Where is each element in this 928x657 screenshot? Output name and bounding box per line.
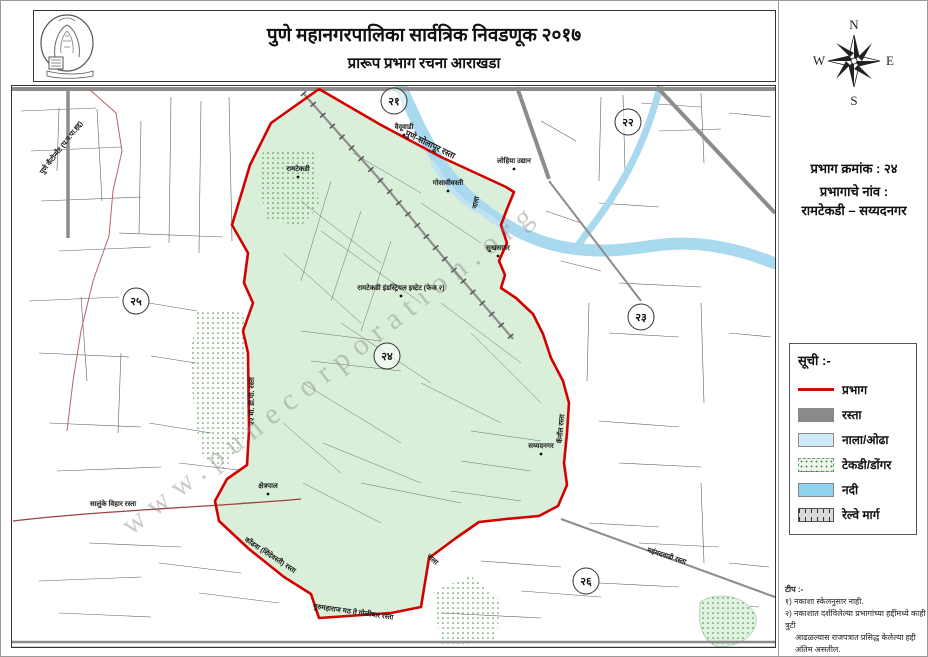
legend-label: टेकडी/डोंगर xyxy=(842,456,891,473)
compass-w: W xyxy=(813,53,826,68)
notes: टीप :- १) नकाशा स्केलनुसार नाही. २) नकाश… xyxy=(785,584,927,656)
map-label: रामटेकडी इंडस्ट्रियल इस्टेट (फेज २) xyxy=(356,283,444,292)
map-label: गोसावीवस्ती xyxy=(432,178,465,187)
legend-label: रेल्वे मार्ग xyxy=(842,506,879,523)
legend-label: नाला/ओढा xyxy=(842,431,889,448)
place-dot xyxy=(297,176,300,179)
ward-map-svg: www.punecorporation.org २१२२२३२४२५२६पुणे… xyxy=(12,86,775,647)
map-label: रामटेकडी xyxy=(285,164,311,173)
svg-text:२६: २६ xyxy=(580,576,592,588)
legend-item: टेकडी/डोंगर xyxy=(798,452,908,477)
compass-n: N xyxy=(849,17,859,32)
place-dot xyxy=(540,453,543,456)
ward-number-marker: २२ xyxy=(615,109,641,135)
legend-swatch-railway xyxy=(798,508,834,522)
legend-swatch-red-line xyxy=(798,388,834,391)
ward-number-marker: २३ xyxy=(628,304,654,330)
map-label: २२ मी. डी.पी. रस्ता xyxy=(247,376,256,425)
svg-text:२१: २१ xyxy=(388,96,399,108)
legend-swatch-solid xyxy=(798,433,834,447)
svg-text:२२: २२ xyxy=(622,117,634,129)
ward-number-marker: २१ xyxy=(381,88,407,114)
legend-item: प्रभाग xyxy=(798,377,908,402)
legend-swatch-dotted xyxy=(798,458,834,472)
map-label: क्षेत्रपाल xyxy=(258,481,278,490)
svg-text:२३: २३ xyxy=(635,312,647,324)
place-dot xyxy=(400,295,403,298)
map-label: पुणे कॅंटोन्मेंट (प.न.पा.हद्द) xyxy=(37,119,85,177)
compass-rose-icon: N E S W xyxy=(812,11,896,111)
place-dot xyxy=(513,168,516,171)
map-label: लोहिया उद्यान xyxy=(496,156,532,165)
header: पुणे महानगरपालिका सार्वत्रिक निवडणूक २०१… xyxy=(33,10,776,82)
notes-line-3: आढळल्यास राजपत्रात प्रसिद्ध केलेल्या हद्… xyxy=(785,632,927,656)
svg-text:२५: २५ xyxy=(130,296,142,308)
place-dot xyxy=(267,493,270,496)
ward-map-sheet: पुणे महानगरपालिका सार्वत्रिक निवडणूक २०१… xyxy=(0,0,928,657)
ward-number: प्रभाग क्रमांक : २४ xyxy=(779,159,928,177)
page-title: पुणे महानगरपालिका सार्वत्रिक निवडणूक २०१… xyxy=(144,21,704,51)
legend: सूची :- प्रभागरस्तानाला/ओढाटेकडी/डोंगरनद… xyxy=(789,343,917,535)
legend-item: नदी xyxy=(798,477,908,502)
legend-item: रस्ता xyxy=(798,402,908,427)
place-dot xyxy=(403,134,406,137)
ward-name-label: प्रभागाचे नांव : xyxy=(779,182,928,200)
legend-title: सूची :- xyxy=(798,351,908,369)
compass-s: S xyxy=(850,93,857,108)
legend-swatch-solid xyxy=(798,483,834,497)
map-label: वैदूवाडी xyxy=(394,122,415,132)
legend-label: प्रभाग xyxy=(842,381,867,398)
legend-label: नदी xyxy=(842,481,858,498)
ward-number-marker: २६ xyxy=(573,568,599,594)
place-dot xyxy=(497,255,500,258)
notes-title: टीप :- xyxy=(785,584,927,596)
ward-name: रामटेकडी – सय्यदनगर xyxy=(779,201,928,219)
legend-item: रेल्वे मार्ग xyxy=(798,502,908,527)
ward-number-marker: २४ xyxy=(374,343,400,369)
map-label: सालुंके विहार रस्ता xyxy=(89,499,137,509)
map-label: महंमदवाडी रस्ता xyxy=(645,545,688,567)
cantonment-boundary xyxy=(67,89,122,431)
compass-e: E xyxy=(886,53,894,68)
notes-line-2: २) नकाशात दर्शविलेल्या प्रभागांच्या हद्द… xyxy=(785,608,927,632)
legend-swatch-solid xyxy=(798,408,834,422)
sidebar: N E S W प्रभाग क्रमांक : २४ प्रभागाचे ना… xyxy=(778,1,928,657)
map-canvas: www.punecorporation.org २१२२२३२४२५२६पुणे… xyxy=(11,85,776,648)
place-dot xyxy=(447,190,450,193)
notes-line-1: १) नकाशा स्केलनुसार नाही. xyxy=(785,596,927,608)
ward-number-marker: २५ xyxy=(123,288,149,314)
legend-item: नाला/ओढा xyxy=(798,427,908,452)
legend-label: रस्ता xyxy=(842,406,862,423)
page-subtitle: प्रारूप प्रभाग रचना आराखडा xyxy=(144,51,704,77)
pmc-logo-icon xyxy=(37,13,101,79)
map-label: सुखसागर xyxy=(485,245,511,253)
legend-items: प्रभागरस्तानाला/ओढाटेकडी/डोंगरनदीरेल्वे … xyxy=(798,377,908,527)
svg-text:२४: २४ xyxy=(381,351,393,363)
map-label: सय्यदनगर xyxy=(527,443,555,450)
